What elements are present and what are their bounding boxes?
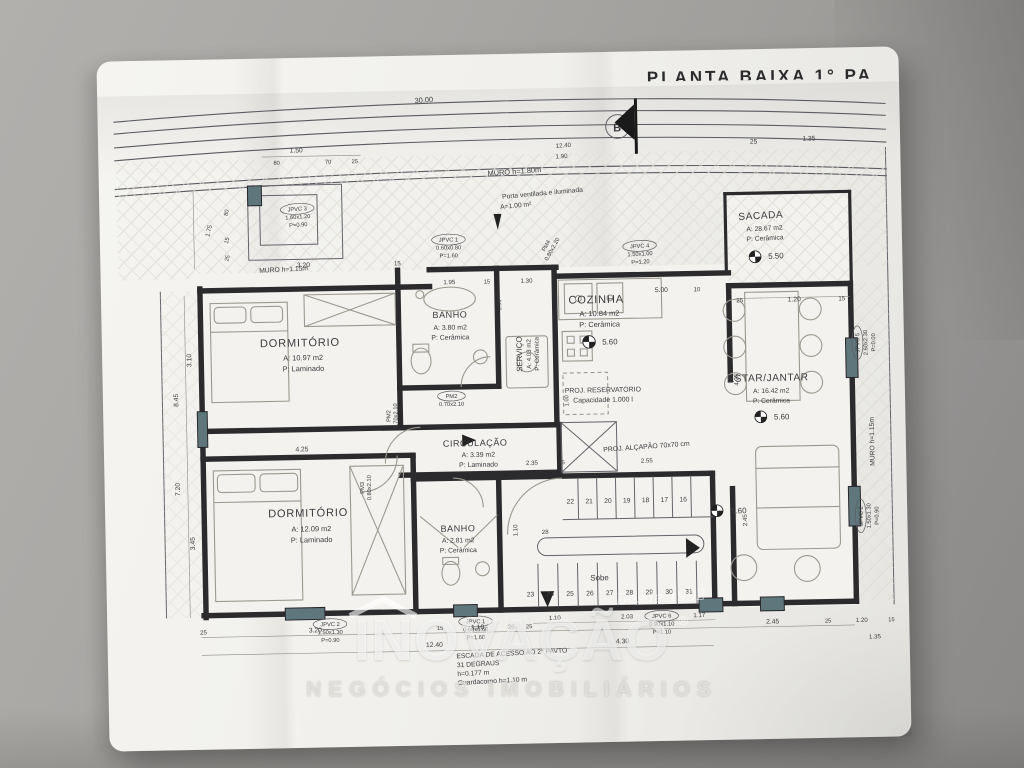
level-symbol — [749, 251, 761, 263]
dim: 2.45 — [742, 514, 749, 527]
dim: 15 — [558, 460, 565, 466]
watermark-logo: Desde 1992 INOVAÇÃO ® NEGÓCIOS IMOBILIÁR… — [232, 612, 792, 702]
dim: 1.10 — [512, 524, 519, 537]
room-name: CIRCULAÇÃO — [443, 437, 508, 448]
dim: 2.35 — [526, 460, 539, 467]
sill: P=1.20 — [631, 259, 650, 266]
watermark-brand-rest: VAÇÃO — [460, 608, 670, 673]
dim: 1.35 — [802, 135, 815, 142]
dim: 1.50 — [290, 147, 303, 154]
size: 0.70x2.10 — [439, 402, 464, 408]
watermark-brand-row: Desde 1992 INOVAÇÃO ® — [354, 612, 670, 670]
section-marker-b: B — [605, 98, 638, 154]
room-area: A: 2.81 m2 — [442, 537, 475, 545]
room-label-banho2: BANHO A: 2.81 m2 P: Cerâmica — [439, 523, 477, 555]
dim: 12.40 — [556, 142, 572, 150]
dim: 1.35 — [869, 633, 882, 640]
step-number: 26 — [586, 590, 594, 597]
room-area: A: 12.09 m2 — [291, 524, 331, 534]
dim: 3.10 — [186, 354, 193, 367]
room-name: COZINHA — [568, 294, 624, 307]
room-name: DORMITÓRIO — [268, 506, 348, 521]
sill: P=1.60 — [440, 253, 458, 259]
dim: 70 — [325, 160, 332, 166]
tag: JPVC 5 — [855, 333, 861, 353]
room-area: A: 16.42 m2 — [753, 388, 790, 396]
stair-turn-number: 28 — [542, 529, 550, 536]
room-floor: P: Cerâmica — [440, 547, 477, 555]
step-number: 19 — [623, 498, 631, 505]
room-level: 5.60 — [774, 412, 790, 421]
size: 0.80x2.10 — [367, 475, 373, 500]
dim: 1.90 — [555, 153, 568, 161]
size: 0.60x0.80 — [436, 245, 461, 251]
tag: PM2 — [386, 410, 392, 422]
room-area: A: 3.80 m2 — [433, 324, 467, 332]
roof-icon — [348, 596, 418, 618]
registered-mark: ® — [679, 614, 689, 627]
stair-level: 5.60 — [731, 506, 747, 515]
step-number: 17 — [661, 497, 669, 504]
room-floor: P: Laminado — [291, 535, 333, 545]
room-area: A: 10.97 m2 — [283, 353, 323, 363]
level-symbol-stairs — [711, 505, 723, 517]
sill: P=0.00 — [871, 333, 877, 351]
watermark-tagline: NEGÓCIOS IMOBILIÁRIOS — [232, 678, 792, 702]
step-number: 20 — [604, 498, 612, 505]
sill: P=0.90 — [874, 506, 880, 524]
level-symbol — [583, 336, 596, 349]
step-number: 22 — [567, 499, 575, 506]
tag: JPVC 2 — [859, 506, 865, 526]
dim: 1.30 — [520, 278, 533, 285]
room-area: A: 10.84 m2 — [579, 309, 619, 319]
dim: 1.00 — [564, 395, 570, 406]
dim: 4.25 — [295, 446, 308, 453]
dim: 5.00 — [655, 287, 668, 294]
room-floor: P: Cerâmica — [431, 334, 469, 342]
step-number: 18 — [642, 497, 650, 504]
dim: 15 — [838, 295, 846, 302]
sacada-floor-hatch — [727, 193, 849, 283]
dim: 1.20 — [856, 617, 869, 624]
room-name: BANHO — [440, 523, 475, 534]
tag: PM2 — [446, 394, 458, 400]
room-floor: P: Cerâmica — [753, 397, 790, 405]
tag: JPVC 1 — [439, 237, 459, 243]
dim: 4.25 — [733, 373, 740, 386]
size: 2.60x2.30 — [863, 330, 869, 355]
room-area: A: 3.39 m2 — [462, 452, 496, 460]
tag: PM3 — [360, 482, 366, 494]
room-level: 5.60 — [602, 337, 618, 346]
dim: 15 — [484, 279, 491, 285]
room-floor: P: Cerâmica — [579, 319, 621, 329]
step-number: 21 — [585, 498, 593, 505]
dim: 25 — [352, 159, 359, 165]
room-label-banho1: BANHO A: 3.80 m2 P: Cerâmica — [431, 309, 470, 342]
step-number: 27 — [606, 590, 614, 597]
room-label-servico: SERVIÇO A: 4.03 m2 P: Cerâmica — [515, 336, 542, 372]
dim-lot-width: 30.00 — [414, 95, 433, 105]
step-number: 23 — [527, 591, 535, 598]
dim: 80 — [273, 161, 280, 167]
size: 0.70x2.10 — [393, 403, 399, 428]
level-symbol — [755, 411, 767, 423]
step-number: 24 — [547, 591, 555, 598]
dim: 15 — [394, 260, 402, 267]
dim: 3.45 — [190, 537, 197, 550]
room-name: BANHO — [432, 310, 467, 321]
dim: 8.45 — [173, 393, 180, 406]
dim: 7.20 — [175, 483, 182, 496]
dim: 25 — [736, 297, 744, 304]
muro-right-label: MURO h=1.15m — [869, 417, 877, 466]
room-floor: P: Cerâmica — [533, 336, 541, 370]
dim: 10 — [694, 286, 702, 293]
room-area: A: 4.03 m2 — [526, 338, 534, 368]
tag: JPVC 4 — [630, 243, 651, 250]
dim: 25 — [200, 629, 208, 636]
dim: 25 — [825, 618, 832, 624]
room-level: 5.50 — [768, 251, 784, 261]
dim: 15 — [888, 617, 895, 623]
step-number: 16 — [679, 496, 687, 503]
dim: 1.95 — [443, 279, 456, 286]
res-line2: Capacidade 1.000 l — [573, 396, 633, 404]
room-floor: P: Laminado — [459, 461, 498, 469]
room-name: DORMITÓRIO — [260, 336, 340, 351]
room-floor: P: Laminado — [282, 364, 324, 374]
dim: 25 — [750, 139, 758, 146]
dim: 2.55 — [641, 457, 654, 464]
step-number: 25 — [566, 591, 574, 598]
dim: 1.20 — [788, 296, 801, 303]
dim: 1.96 — [497, 299, 503, 310]
sobe-label: Sobe — [590, 573, 609, 582]
room-name: SERVIÇO — [515, 336, 525, 372]
dim: 3.20 — [297, 262, 310, 269]
size: 1.50x1.30 — [866, 503, 872, 528]
